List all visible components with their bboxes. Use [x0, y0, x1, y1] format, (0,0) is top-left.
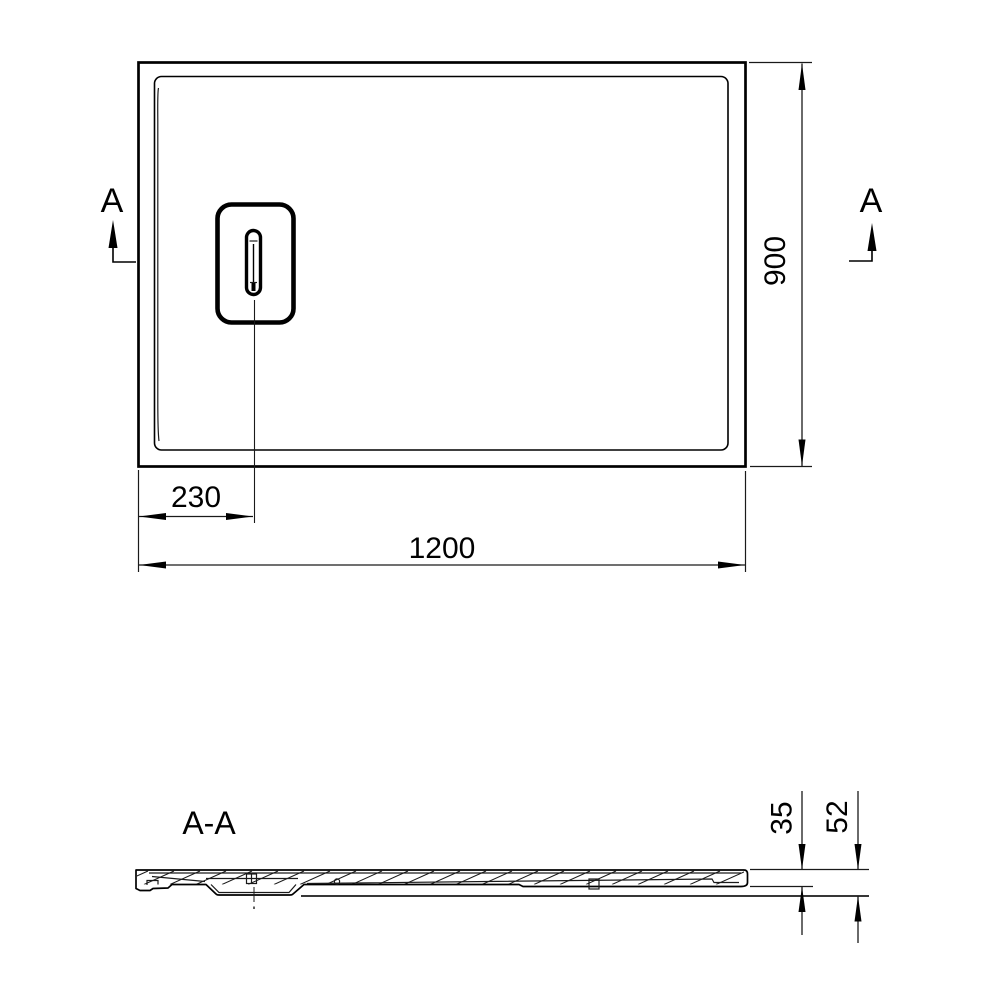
- dim-230-value: 230: [171, 481, 221, 514]
- dim-52: 52: [821, 791, 862, 943]
- arrow-up-icon: [855, 896, 862, 922]
- section-title: A-A: [182, 805, 236, 841]
- section-marker-left-line: [113, 248, 136, 262]
- arrow-down-icon: [799, 844, 806, 870]
- top-view: A A 900 230: [101, 63, 883, 573]
- drawing-canvas: A A 900 230: [0, 0, 1000, 1000]
- arrow-left-icon: [139, 513, 166, 520]
- tray-inner-slope-line: [158, 88, 159, 441]
- arrow-down-icon: [855, 844, 862, 870]
- section-marker-right: A: [849, 182, 883, 261]
- section-marker-left-label: A: [101, 182, 124, 220]
- section-marker-right-label: A: [860, 182, 883, 220]
- arrow-right-icon: [718, 562, 745, 569]
- section-arrow-up-icon: [868, 223, 877, 251]
- arrow-up-icon: [799, 64, 806, 91]
- dim-230: 230: [139, 470, 254, 572]
- arrow-right-icon: [226, 513, 253, 520]
- tray-inner-edge: [155, 77, 729, 451]
- section-arrow-up-icon: [109, 220, 118, 248]
- section-marker-right-line: [849, 251, 872, 261]
- arrow-up-icon: [799, 887, 806, 913]
- dim-1200-value: 1200: [409, 532, 476, 565]
- dim-1200: 1200: [139, 471, 746, 572]
- arrow-left-icon: [139, 562, 166, 569]
- dim-52-value: 52: [821, 800, 854, 833]
- dim-900-value: 900: [759, 236, 792, 286]
- drain-cover: [218, 205, 294, 323]
- section-underside-line: [307, 879, 739, 884]
- section-marker-left: A: [101, 182, 136, 262]
- arrow-down-icon: [799, 440, 806, 467]
- dim-35: 35: [766, 791, 806, 935]
- tray-outer-rim: [139, 63, 746, 467]
- dim-35-value: 35: [766, 801, 799, 834]
- technical-drawing: A A 900 230: [0, 0, 1000, 1000]
- section-view: A-A: [118, 791, 869, 943]
- dim-900: 900: [749, 63, 812, 467]
